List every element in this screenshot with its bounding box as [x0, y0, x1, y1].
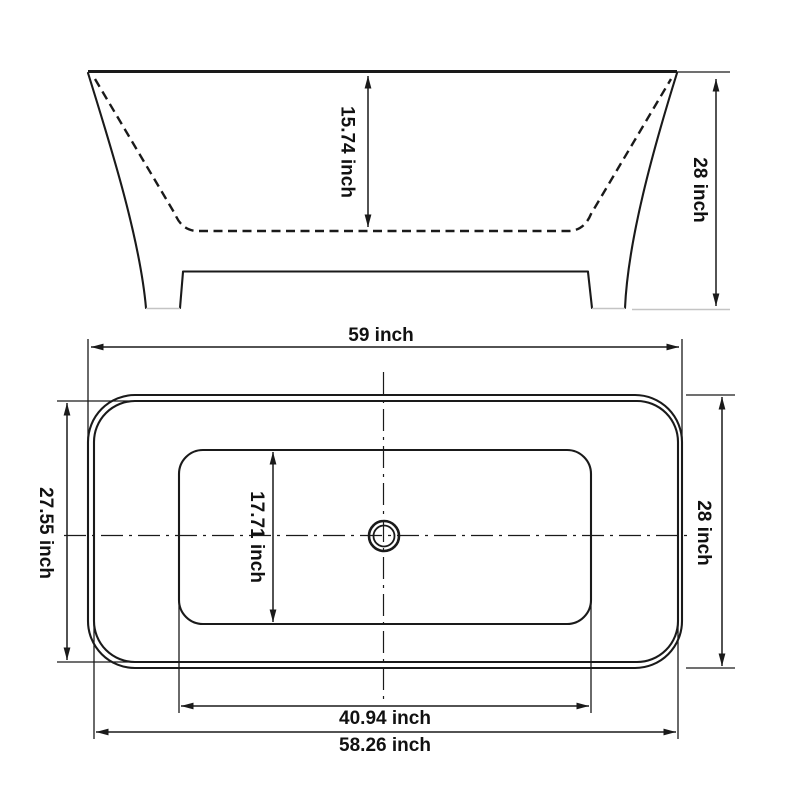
basin-depth-label: 15.74 inch [337, 106, 358, 198]
overall-height-label: 28 inch [689, 157, 710, 222]
rim-inner-width-label: 27.55 inch [35, 487, 56, 579]
side-right-foot-inner [588, 272, 592, 308]
dim-overall-height: 28 inch [632, 72, 730, 310]
dim-basin-floor-width: 17.71 inch [246, 452, 273, 622]
overall-length-label: 59 inch [348, 325, 413, 346]
dim-basin-floor-length: 40.94 inch [179, 600, 591, 729]
drawing-canvas: 15.74 inch 28 inch 59 inch [0, 0, 800, 800]
dim-overall-width: 28 inch [686, 395, 735, 668]
dim-basin-depth: 15.74 inch [337, 76, 369, 227]
plan-outer-edge [88, 395, 682, 668]
rim-inner-length-label: 58.26 inch [339, 735, 431, 756]
basin-floor-length-label: 40.94 inch [339, 708, 431, 729]
overall-width-label: 28 inch [693, 500, 714, 565]
side-left-foot-inner [180, 272, 183, 308]
side-right-wall [625, 73, 677, 308]
dim-overall-length: 59 inch [88, 325, 682, 458]
basin-floor-width-label: 17.71 inch [246, 491, 267, 583]
side-interior-dashed-profile [95, 79, 671, 231]
side-view: 15.74 inch 28 inch [88, 72, 730, 310]
dim-rim-inner-width: 27.55 inch [35, 401, 182, 662]
side-left-wall [88, 73, 146, 308]
top-view: 27.55 inch 28 inch 17.71 inch 40.94 inch [35, 372, 735, 756]
bathtub-dimension-drawing: 15.74 inch 28 inch 59 inch [0, 0, 800, 800]
plan-basin-floor-edge [179, 450, 591, 624]
